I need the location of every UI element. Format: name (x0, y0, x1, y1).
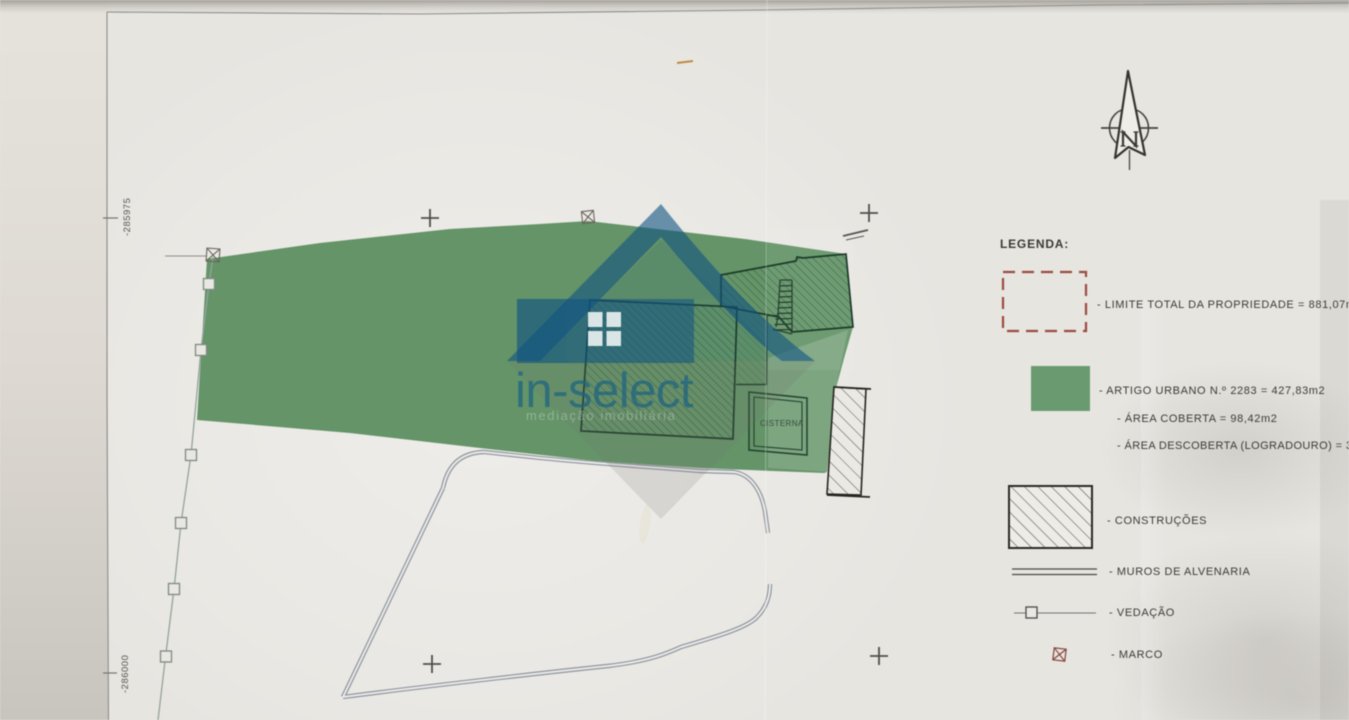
svg-text:- CONSTRUÇÕES: - CONSTRUÇÕES (1107, 514, 1207, 527)
svg-text:- ARTIGO URBANO N.º 2283 = 427: - ARTIGO URBANO N.º 2283 = 427,83m2 (1099, 385, 1325, 397)
svg-text:- LIMITE TOTAL DA PROPRIEDADE: - LIMITE TOTAL DA PROPRIEDADE = 881,07m2 (1097, 299, 1349, 311)
svg-text:- MUROS DE ALVENARIA: - MUROS DE ALVENARIA (1109, 566, 1250, 578)
svg-text:-285975: -285975 (122, 198, 133, 236)
svg-text:- MARCO: - MARCO (1111, 649, 1163, 661)
svg-text:mediação imobiliária: mediação imobiliária (526, 408, 677, 423)
svg-text:LEGENDA:: LEGENDA: (1000, 237, 1069, 251)
svg-text:-286000: -286000 (120, 655, 131, 693)
svg-text:- ÁREA COBERTA = 98,42m2: - ÁREA COBERTA = 98,42m2 (1117, 412, 1277, 425)
svg-text:- VEDAÇÃO: - VEDAÇÃO (1109, 606, 1175, 619)
svg-text:CISTERNA: CISTERNA (760, 419, 804, 428)
svg-text:- ÁREA DESCOBERTA (LOGRADOURO): - ÁREA DESCOBERTA (LOGRADOURO) = 32 (1117, 439, 1349, 452)
